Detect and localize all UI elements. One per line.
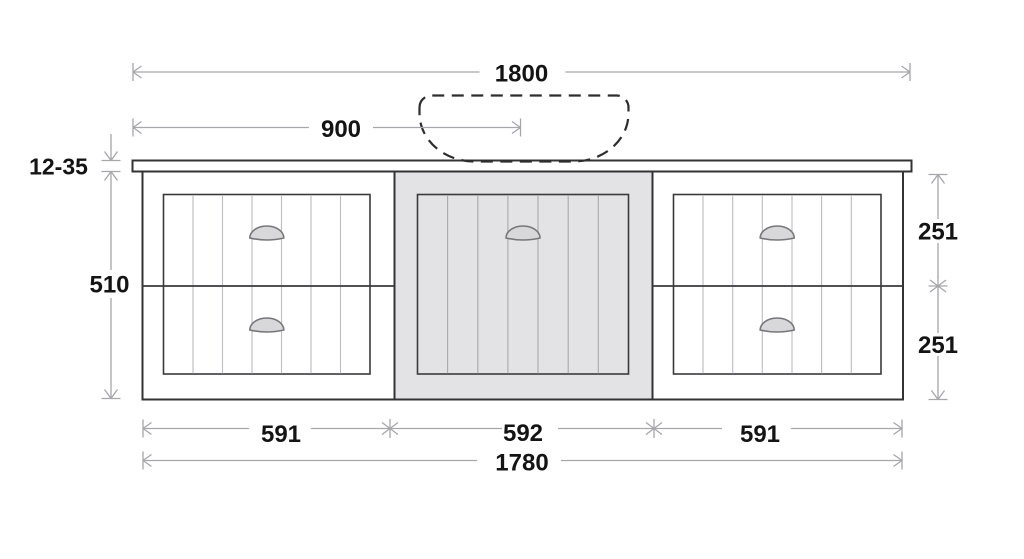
svg-text:510: 510 [89,272,129,299]
svg-text:591: 591 [261,421,301,448]
svg-text:592: 592 [503,420,543,447]
svg-text:1800: 1800 [495,61,548,88]
svg-text:591: 591 [740,421,780,448]
svg-text:251: 251 [918,219,958,246]
svg-text:1780: 1780 [495,450,548,477]
svg-text:12-35: 12-35 [29,154,88,180]
svg-text:900: 900 [321,116,361,143]
svg-text:251: 251 [918,332,958,359]
